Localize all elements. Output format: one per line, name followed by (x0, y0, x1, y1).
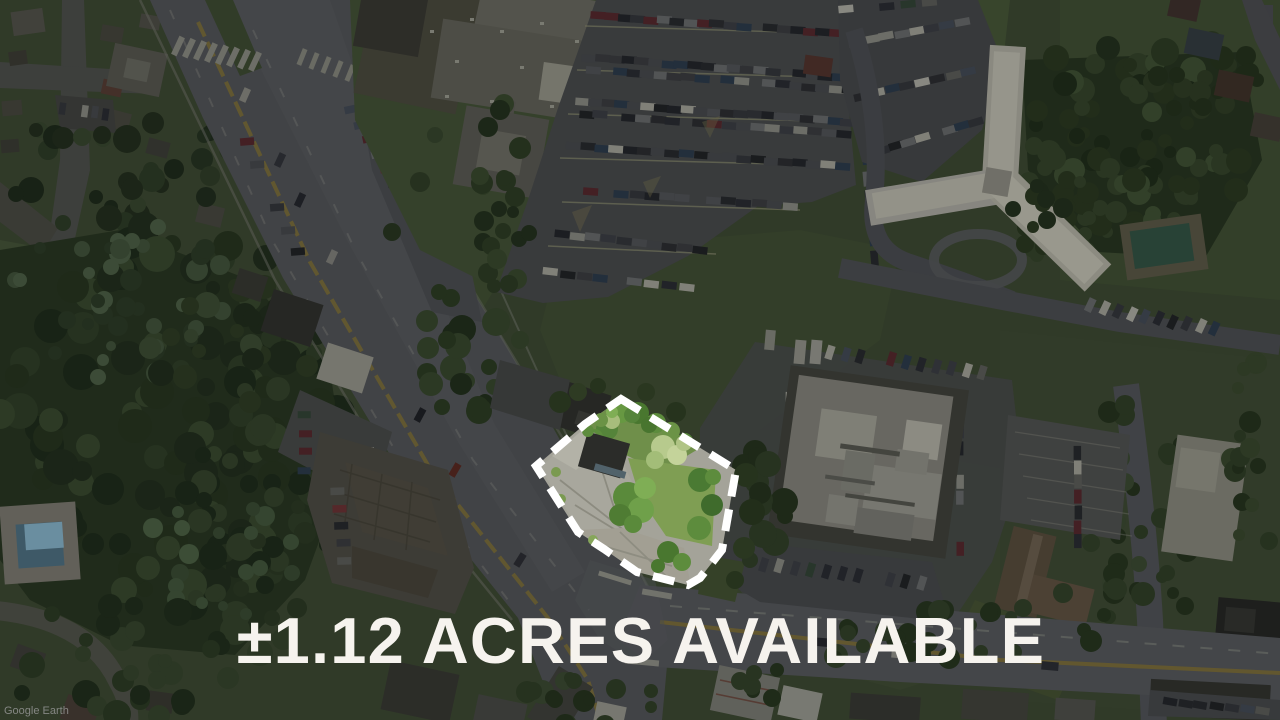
svg-text:Google Earth: Google Earth (4, 705, 69, 717)
svg-text:±1.12 ACRES AVAILABLE: ±1.12 ACRES AVAILABLE (237, 604, 1046, 677)
